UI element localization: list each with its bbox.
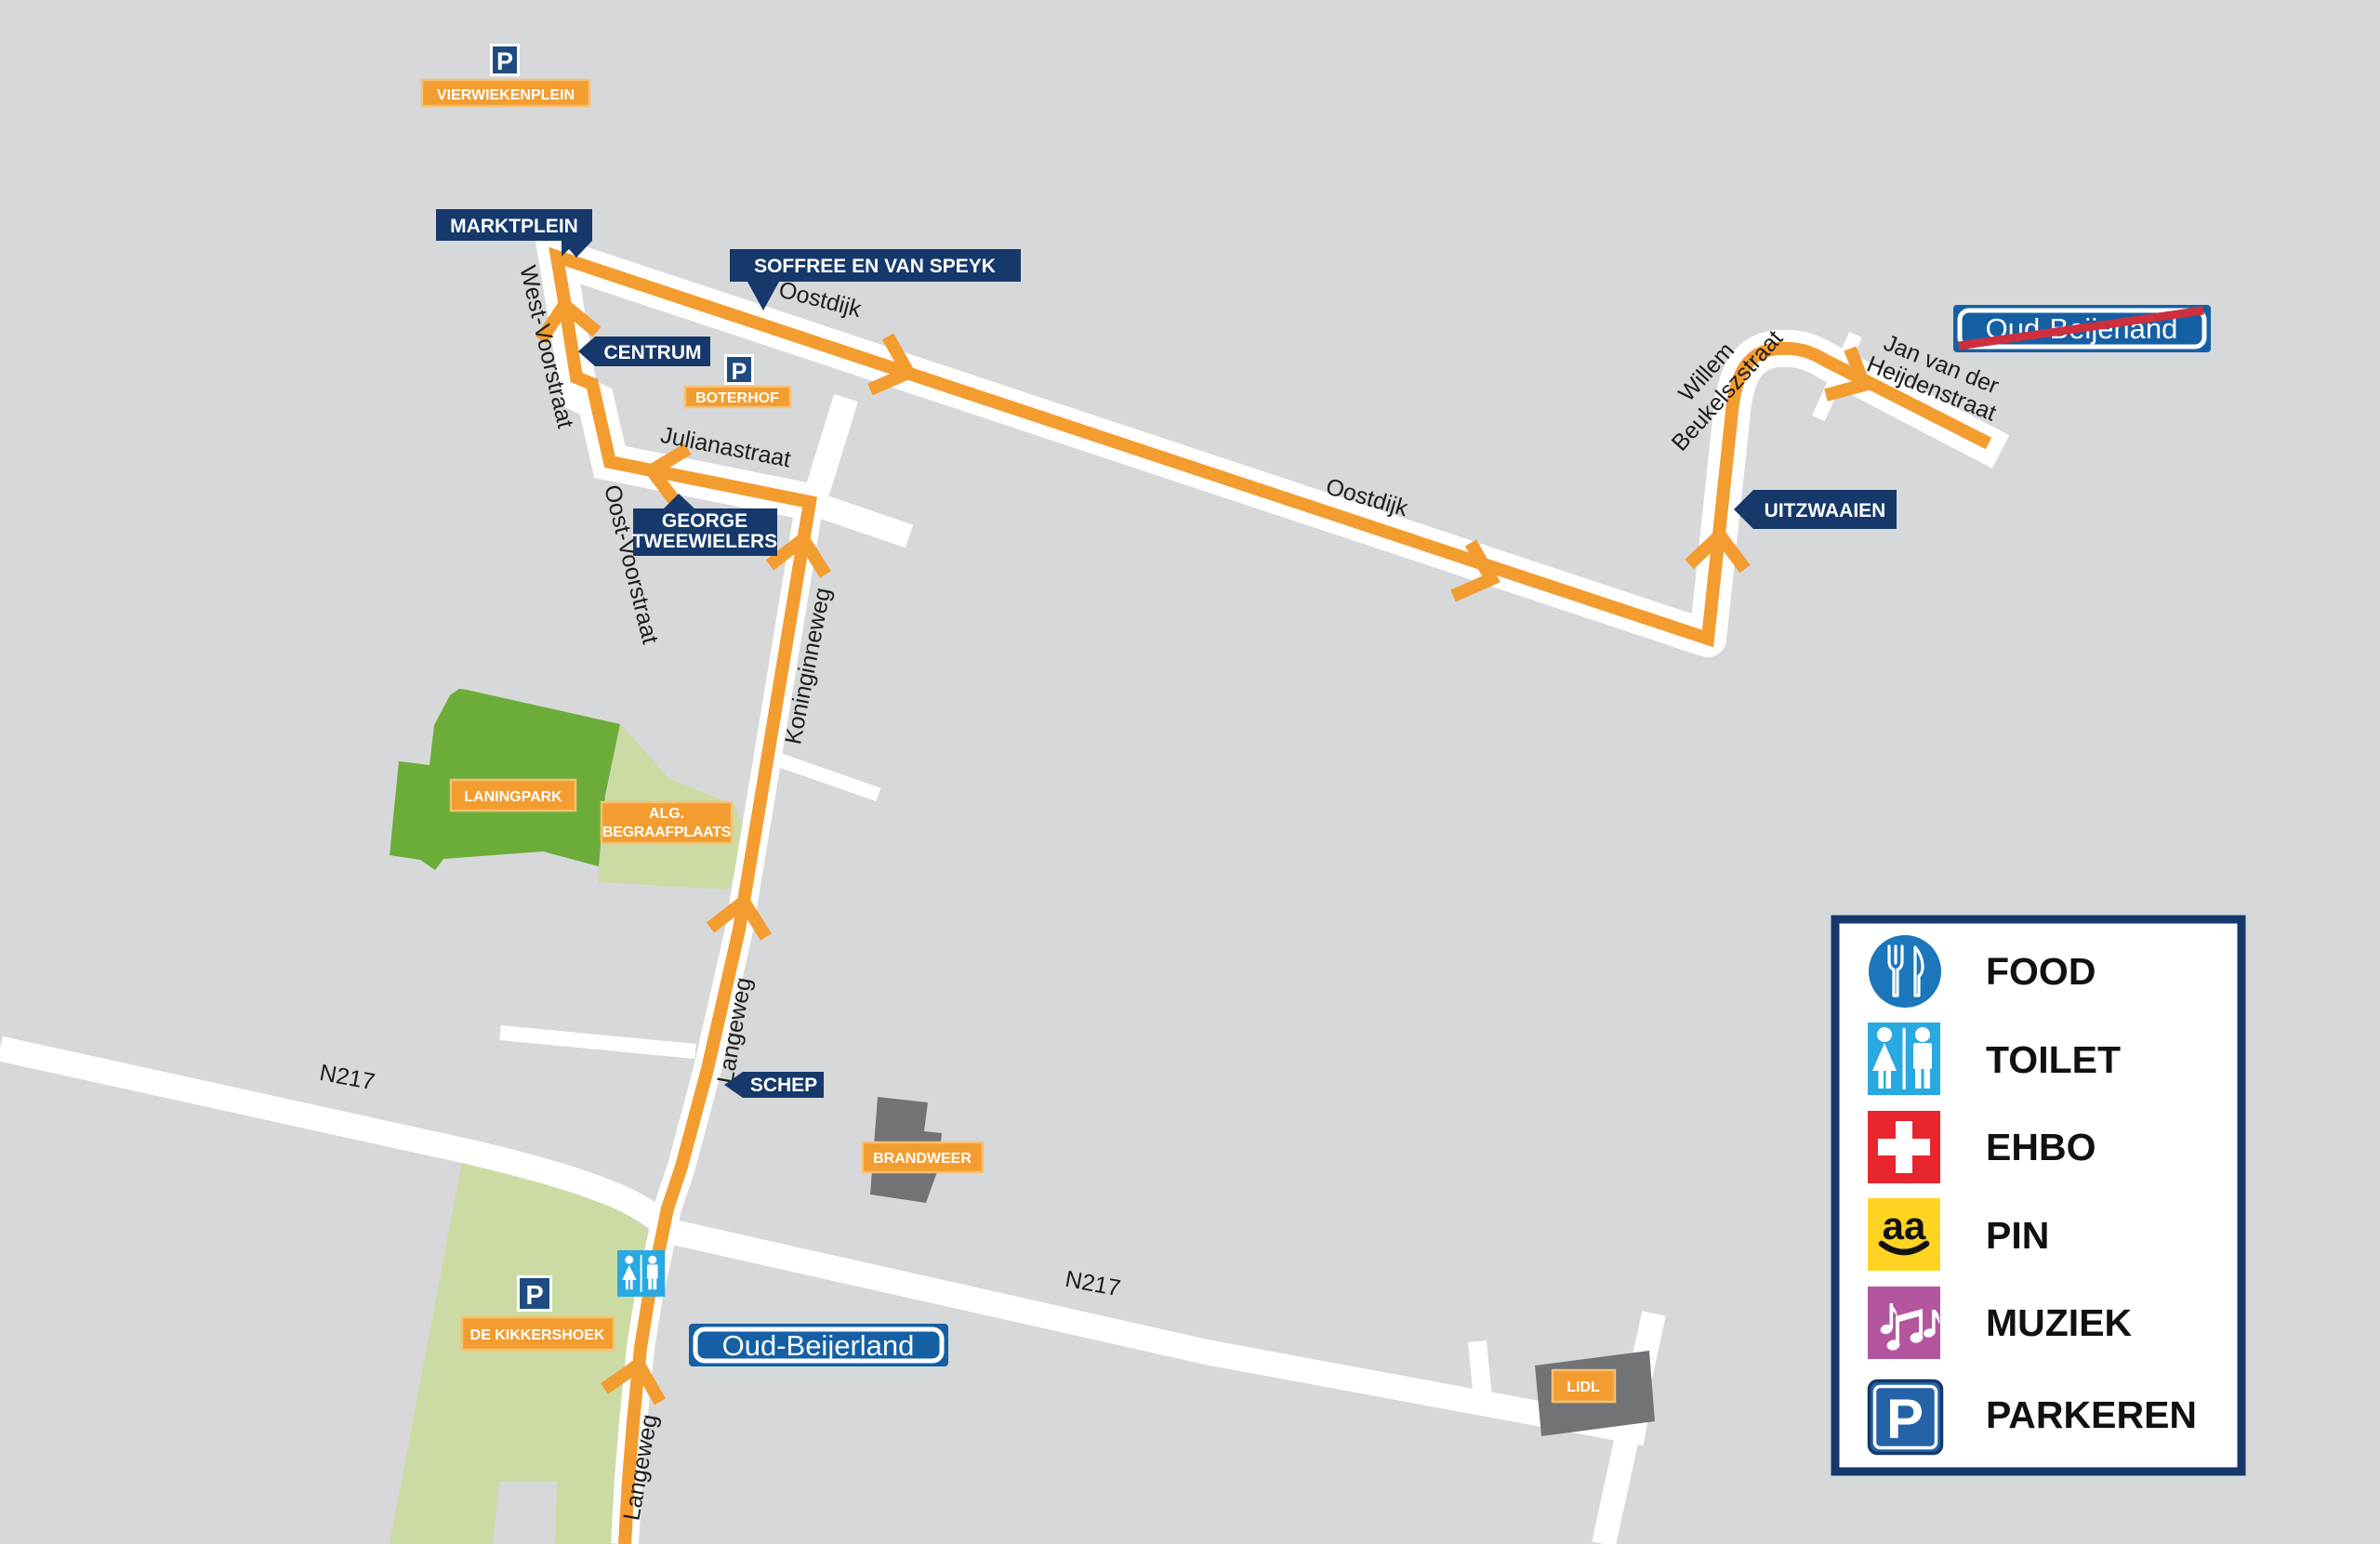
svg-text:EHBO: EHBO (1986, 1126, 2096, 1168)
svg-text:LANINGPARK: LANINGPARK (464, 789, 562, 805)
svg-text:GEORGE: GEORGE (662, 510, 747, 532)
svg-text:UITZWAAIEN: UITZWAAIEN (1765, 500, 1886, 521)
svg-text:MUZIEK: MUZIEK (1986, 1301, 2133, 1344)
svg-text:LIDL: LIDL (1567, 1379, 1600, 1395)
svg-text:SCHEP: SCHEP (750, 1075, 817, 1096)
svg-text:MARKTPLEIN: MARKTPLEIN (450, 216, 578, 237)
svg-text:ALG.: ALG. (649, 806, 684, 822)
svg-text:TOILET: TOILET (1986, 1038, 2121, 1081)
svg-text:SOFFREE EN VAN SPEYK: SOFFREE EN VAN SPEYK (754, 256, 996, 277)
svg-text:BOTERHOF: BOTERHOF (695, 390, 779, 406)
svg-text:DE KIKKERSHOEK: DE KIKKERSHOEK (470, 1327, 605, 1343)
svg-text:BEGRAAFPLAATS: BEGRAAFPLAATS (602, 825, 732, 840)
svg-text:P: P (525, 1281, 543, 1311)
svg-text:TWEEWIELERS: TWEEWIELERS (632, 531, 777, 552)
svg-text:BRANDWEER: BRANDWEER (873, 1151, 972, 1167)
svg-text:P: P (1886, 1388, 1924, 1450)
svg-text:P: P (732, 359, 747, 385)
svg-text:P: P (496, 47, 513, 75)
svg-text:CENTRUM: CENTRUM (604, 342, 702, 363)
svg-text:FOOD: FOOD (1986, 950, 2096, 993)
svg-text:Oud-Beijerland: Oud-Beijerland (722, 1329, 915, 1362)
svg-text:PIN: PIN (1986, 1214, 2049, 1257)
svg-text:PARKEREN: PARKEREN (1986, 1393, 2197, 1436)
svg-text:aa: aa (1883, 1204, 1926, 1247)
svg-text:VIERWIEKENPLEIN: VIERWIEKENPLEIN (437, 87, 575, 103)
